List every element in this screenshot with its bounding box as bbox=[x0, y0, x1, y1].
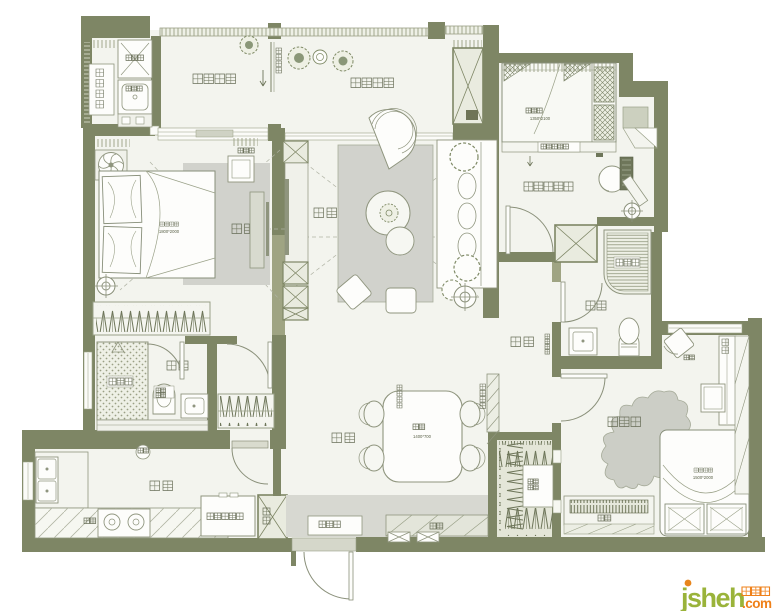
svg-text:1500*2000: 1500*2000 bbox=[693, 475, 714, 480]
svg-text:jsheh: jsheh bbox=[680, 583, 744, 611]
svg-text:.com: .com bbox=[742, 596, 772, 611]
svg-text:1800*2000: 1800*2000 bbox=[159, 229, 180, 234]
svg-text:1350*2100: 1350*2100 bbox=[530, 116, 551, 121]
svg-text:1400*700: 1400*700 bbox=[413, 434, 432, 439]
